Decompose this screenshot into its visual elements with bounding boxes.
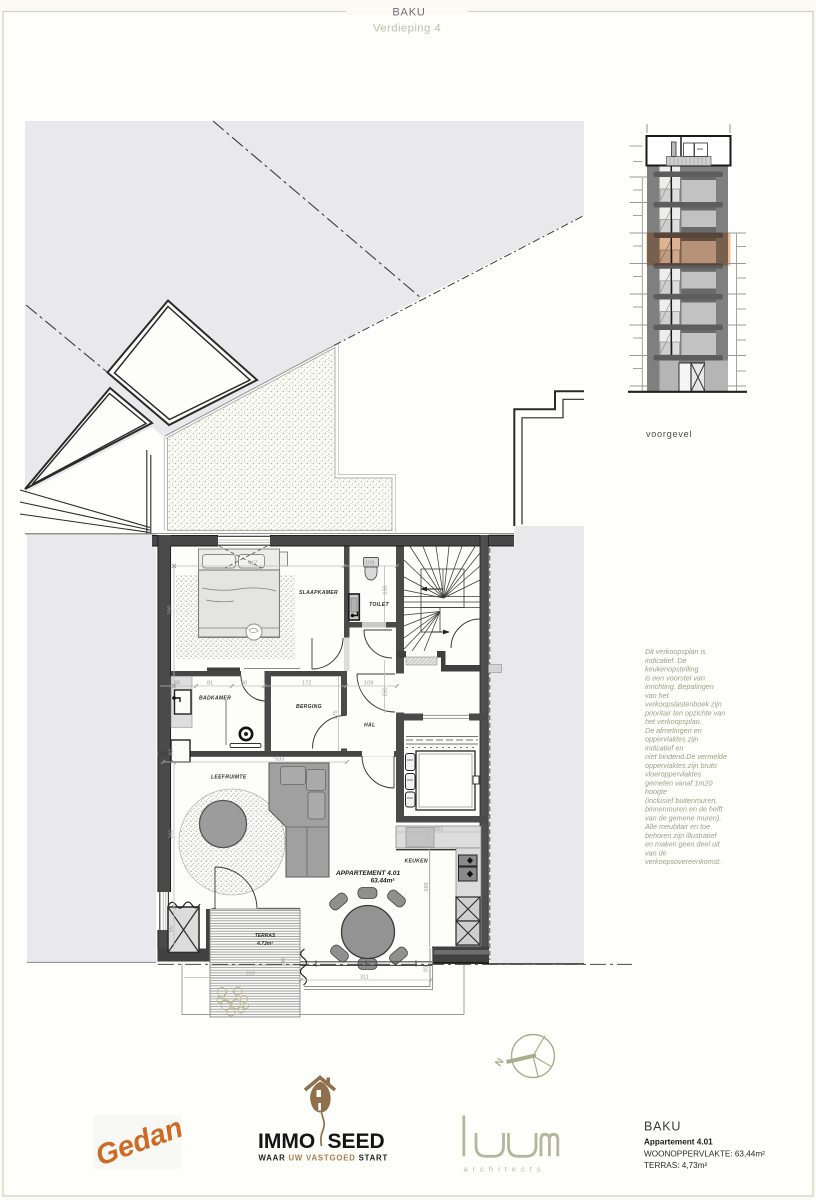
svg-text:280: 280 <box>168 605 174 614</box>
svg-text:hoogte: hoogte <box>645 787 667 796</box>
svg-text:63.44m²: 63.44m² <box>371 878 396 885</box>
svg-text:BADKAMER: BADKAMER <box>199 696 231 702</box>
svg-text:van de gemene muren).: van de gemene muren). <box>645 813 721 822</box>
svg-text:202: 202 <box>246 972 255 978</box>
svg-text:BERGING: BERGING <box>296 704 322 710</box>
svg-text:binnenmuren en de helft: binnenmuren en de helft <box>645 805 724 814</box>
svg-text:360: 360 <box>169 829 175 838</box>
svg-text:prioritair ten opzichte van: prioritair ten opzichte van <box>644 708 725 717</box>
svg-text:verkoopslastenboek zijn: verkoopslastenboek zijn <box>645 700 722 709</box>
svg-text:WOONOPPERVLAKTE: 63,44m²: WOONOPPERVLAKTE: 63,44m² <box>644 1150 765 1159</box>
svg-text:93: 93 <box>424 966 430 972</box>
svg-text:oppervlaktes zijn: oppervlaktes zijn <box>645 735 699 744</box>
svg-text:Appartement 4.01: Appartement 4.01 <box>644 1138 713 1147</box>
svg-text:TERRAS: TERRAS <box>255 933 276 939</box>
svg-text:van het: van het <box>645 691 670 700</box>
svg-text:indicatief. De: indicatief. De <box>645 656 687 665</box>
svg-text:Verdieping 4: Verdieping 4 <box>373 23 441 35</box>
svg-text:WAAR UW VASTGOED START: WAAR UW VASTGOED START <box>259 1154 389 1163</box>
svg-text:gemeten vanaf 1m20: gemeten vanaf 1m20 <box>645 778 713 787</box>
svg-text:en maken geen deel uit: en maken geen deel uit <box>645 840 721 849</box>
svg-text:LEEFRUIMTE: LEEFRUIMTE <box>211 775 247 781</box>
svg-text:311: 311 <box>360 975 369 981</box>
svg-text:SLAAPKAMER: SLAAPKAMER <box>299 590 338 596</box>
svg-text:HAL: HAL <box>364 723 375 729</box>
svg-text:BAKU: BAKU <box>644 1120 681 1134</box>
svg-text:201: 201 <box>434 827 443 833</box>
svg-text:vloeroppervlaktes: vloeroppervlaktes <box>645 770 702 779</box>
svg-text:289: 289 <box>424 882 430 891</box>
svg-text:90: 90 <box>281 958 287 964</box>
svg-text:62: 62 <box>169 749 175 755</box>
svg-text:90: 90 <box>241 681 247 687</box>
svg-text:niet bindend.De vermelde: niet bindend.De vermelde <box>645 752 727 761</box>
svg-text:175: 175 <box>333 710 339 719</box>
svg-text:architects: architects <box>464 1165 546 1174</box>
svg-text:150: 150 <box>383 585 389 594</box>
svg-text:oppervlaktes zijn bruto: oppervlaktes zijn bruto <box>645 761 717 770</box>
svg-text:APPARTEMENT 4.01: APPARTEMENT 4.01 <box>335 870 401 877</box>
svg-text:De afmetingen en: De afmetingen en <box>645 726 702 735</box>
svg-text:109: 109 <box>365 561 374 567</box>
svg-text:81: 81 <box>207 681 213 687</box>
svg-text:BAKU: BAKU <box>392 7 425 19</box>
svg-text:keukenopstelling: keukenopstelling <box>645 665 699 674</box>
svg-text:indicatief en: indicatief en <box>645 743 683 752</box>
svg-text:172: 172 <box>302 681 311 687</box>
svg-text:65: 65 <box>169 926 175 932</box>
svg-text:voorgevel: voorgevel <box>646 429 692 439</box>
svg-text:533: 533 <box>275 757 284 763</box>
svg-text:SEED: SEED <box>328 1130 385 1153</box>
svg-text:is een voorstel van: is een voorstel van <box>645 673 705 682</box>
svg-text:Dit verkoopsplan is: Dit verkoopsplan is <box>645 647 706 656</box>
svg-text:250: 250 <box>383 687 389 696</box>
svg-text:60: 60 <box>174 681 180 687</box>
svg-text:KEUKEN: KEUKEN <box>405 859 428 865</box>
svg-text:verkoopsovereenkomst.: verkoopsovereenkomst. <box>645 857 721 866</box>
svg-text:inrichting. Bepalingen: inrichting. Bepalingen <box>645 682 714 691</box>
svg-text:(inclusief buitenmuren,: (inclusief buitenmuren, <box>645 796 717 805</box>
svg-text:4.73m²: 4.73m² <box>256 941 273 947</box>
svg-text:109: 109 <box>364 681 373 687</box>
svg-text:417: 417 <box>248 561 257 567</box>
svg-text:TOILET: TOILET <box>369 602 389 608</box>
svg-text:behoren zijn illustratief: behoren zijn illustratief <box>645 831 718 840</box>
svg-text:Alle meubilair en toe: Alle meubilair en toe <box>644 822 710 831</box>
svg-text:TERRAS: 4,73m²: TERRAS: 4,73m² <box>644 1161 708 1170</box>
svg-text:IMMO: IMMO <box>258 1130 315 1153</box>
svg-text:het verkoopsplan.: het verkoopsplan. <box>645 717 702 726</box>
svg-text:van de: van de <box>645 848 667 857</box>
